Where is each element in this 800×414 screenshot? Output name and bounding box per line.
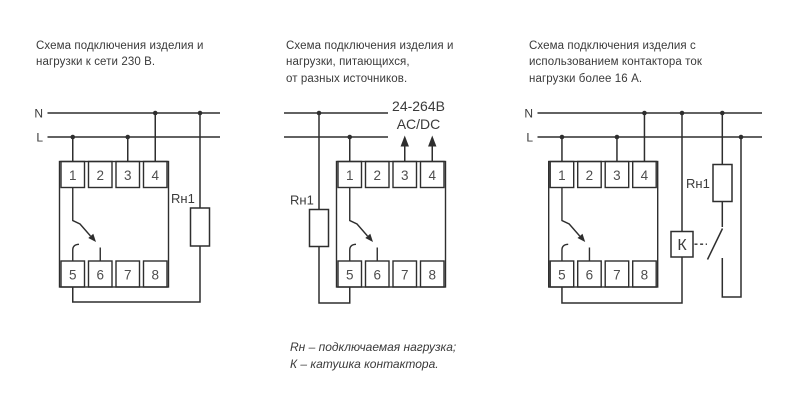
supply-arrow-head bbox=[428, 136, 436, 147]
load-resistor bbox=[310, 210, 329, 247]
neutral-label: N bbox=[34, 107, 43, 121]
contactor-contact-blade bbox=[708, 229, 723, 260]
junction-dot bbox=[317, 111, 322, 116]
diagram-contactor-circuit: N L Rн1 К bbox=[524, 107, 762, 304]
diagram-230v-circuit: N L Rн1 bbox=[34, 107, 220, 303]
junction-dot bbox=[198, 111, 203, 116]
relay-module bbox=[60, 162, 169, 288]
contactor-coil-label: К bbox=[677, 237, 687, 254]
supply-arrows bbox=[401, 136, 437, 162]
junction-dot bbox=[739, 135, 744, 140]
junction-dot bbox=[125, 135, 130, 140]
junction-dot bbox=[720, 111, 725, 116]
wiring bbox=[538, 113, 763, 303]
wire-load-t5 bbox=[73, 246, 200, 302]
supply-voltage-label: 24-264В bbox=[392, 98, 445, 114]
junction-dots bbox=[70, 111, 202, 140]
junction-dot bbox=[680, 111, 685, 116]
wire-coil-t5 bbox=[562, 257, 682, 303]
diagram-separate-supply-circuit: Rн1 24-264В AC/DC bbox=[284, 98, 446, 303]
load-resistor bbox=[191, 208, 210, 246]
load-label: Rн1 bbox=[686, 176, 710, 191]
relay-module bbox=[337, 162, 446, 288]
junction-dot bbox=[153, 111, 158, 116]
junction-dot bbox=[70, 135, 75, 140]
load-resistor bbox=[713, 165, 732, 202]
junction-dots bbox=[560, 111, 744, 140]
junction-dot bbox=[347, 135, 352, 140]
supply-arrow-head bbox=[401, 136, 409, 147]
wire-contact-line bbox=[722, 137, 741, 297]
junction-dots bbox=[317, 111, 352, 140]
supply-type-label: AC/DC bbox=[397, 116, 441, 132]
legend-coil-definition: К – катушка контактора. bbox=[290, 356, 456, 373]
line-label: L bbox=[36, 131, 43, 145]
line-label: L bbox=[526, 131, 533, 145]
connection-schemes-page: Схема подключения изделия и нагрузки к с… bbox=[0, 0, 800, 414]
relay-module bbox=[549, 162, 658, 288]
junction-dot bbox=[560, 135, 565, 140]
load-label: Rн1 bbox=[171, 191, 195, 206]
junction-dot bbox=[642, 111, 647, 116]
load-label: Rн1 bbox=[290, 193, 314, 208]
junction-dot bbox=[615, 135, 620, 140]
legend: Rн – подключаемая нагрузка; К – катушка … bbox=[290, 339, 456, 372]
neutral-label: N bbox=[524, 107, 533, 121]
legend-load-definition: Rн – подключаемая нагрузка; bbox=[290, 339, 456, 356]
